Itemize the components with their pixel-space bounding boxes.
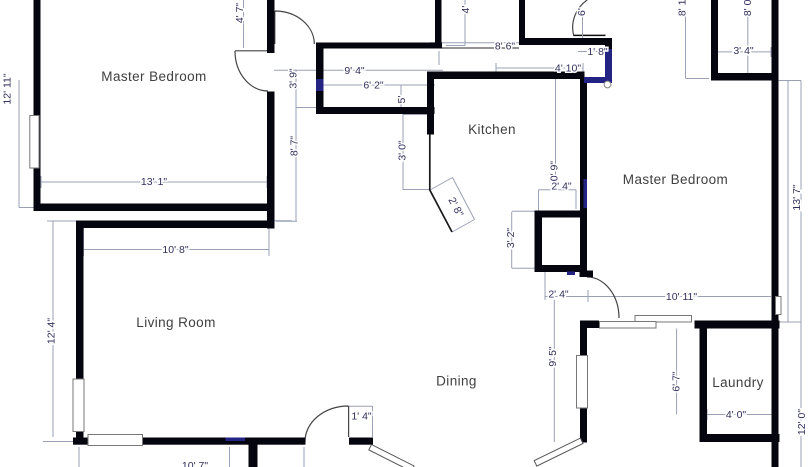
svg-text:Laundry: Laundry [712, 375, 764, 390]
svg-text:13' 7": 13' 7" [791, 184, 803, 210]
svg-text:12' 0": 12' 0" [796, 409, 808, 435]
svg-text:6': 6' [576, 8, 588, 16]
svg-text:3' 2": 3' 2" [505, 228, 517, 249]
svg-text:1' 4": 1' 4" [351, 411, 372, 423]
svg-text:2' 4": 2' 4" [548, 289, 569, 301]
svg-text:6' 2": 6' 2" [363, 80, 384, 92]
svg-text:9' 5": 9' 5" [547, 346, 559, 367]
svg-text:13' 1": 13' 1" [141, 176, 167, 188]
svg-text:8' 7": 8' 7" [289, 136, 301, 157]
svg-text:8' 6": 8' 6" [495, 41, 516, 53]
svg-text:2' 4": 2' 4" [551, 181, 572, 193]
svg-text:4' 10": 4' 10" [555, 63, 581, 75]
svg-text:4': 4' [460, 6, 472, 14]
svg-text:Master Bedroom: Master Bedroom [101, 69, 206, 84]
svg-text:Master Bedroom: Master Bedroom [623, 172, 728, 187]
svg-text:4' 0": 4' 0" [726, 409, 747, 421]
svg-text:10' 8": 10' 8" [162, 244, 188, 256]
svg-text:8' 0": 8' 0" [742, 0, 754, 16]
svg-text:4' 7": 4' 7" [234, 3, 246, 24]
svg-text:3' 9": 3' 9" [288, 68, 300, 89]
svg-text:10' 7": 10' 7" [182, 460, 208, 467]
svg-text:3' 4": 3' 4" [733, 45, 754, 57]
svg-text:8' 1": 8' 1" [677, 0, 689, 16]
svg-text:Dining: Dining [436, 374, 477, 389]
svg-text:Kitchen: Kitchen [468, 122, 516, 137]
svg-text:6' 7": 6' 7" [671, 371, 683, 392]
svg-text:5': 5' [396, 96, 408, 104]
svg-text:1' 8": 1' 8" [587, 46, 608, 58]
svg-text:10' 11": 10' 11" [666, 291, 698, 303]
svg-text:9' 4": 9' 4" [344, 65, 365, 77]
svg-text:3' 0": 3' 0" [397, 140, 409, 161]
svg-text:12' 11": 12' 11" [2, 73, 14, 105]
svg-text:12' 4": 12' 4" [46, 318, 58, 344]
svg-text:Living Room: Living Room [136, 315, 215, 330]
